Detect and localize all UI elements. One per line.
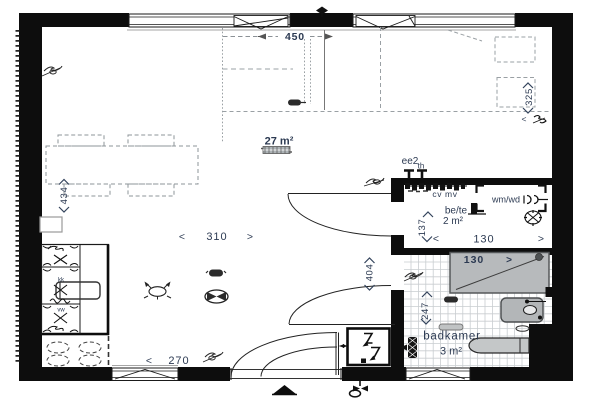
svg-text:137: 137 (417, 219, 428, 237)
svg-text:<: < (146, 355, 152, 367)
svg-text:vw: vw (57, 308, 65, 314)
svg-text:be/te: be/te (445, 206, 468, 217)
svg-text:450: 450 (285, 31, 305, 43)
svg-text:<: < (179, 231, 185, 243)
svg-text:wm/wd: wm/wd (491, 195, 520, 205)
svg-text:kk: kk (58, 278, 65, 284)
svg-text:cv mv: cv mv (432, 189, 457, 199)
svg-text:<: < (433, 233, 439, 245)
svg-text:130: 130 (464, 254, 485, 266)
svg-text:<: < (522, 114, 527, 124)
svg-text:>: > (506, 255, 512, 266)
svg-text:3 m²: 3 m² (440, 346, 462, 358)
svg-text:2 m²: 2 m² (443, 216, 464, 227)
svg-text:325: 325 (524, 88, 535, 106)
svg-text:130: 130 (473, 234, 494, 246)
svg-text:310: 310 (206, 231, 227, 243)
svg-text:th: th (418, 162, 425, 171)
svg-text:badkamer: badkamer (423, 331, 481, 343)
svg-text:247: 247 (420, 302, 431, 320)
svg-text:404: 404 (365, 264, 376, 282)
svg-text:27 m²: 27 m² (265, 136, 294, 148)
svg-text:ee2: ee2 (402, 156, 419, 167)
svg-text:>: > (538, 233, 544, 245)
svg-text:>: > (247, 231, 253, 243)
svg-text:434: 434 (59, 187, 70, 205)
svg-text:270: 270 (168, 355, 189, 367)
